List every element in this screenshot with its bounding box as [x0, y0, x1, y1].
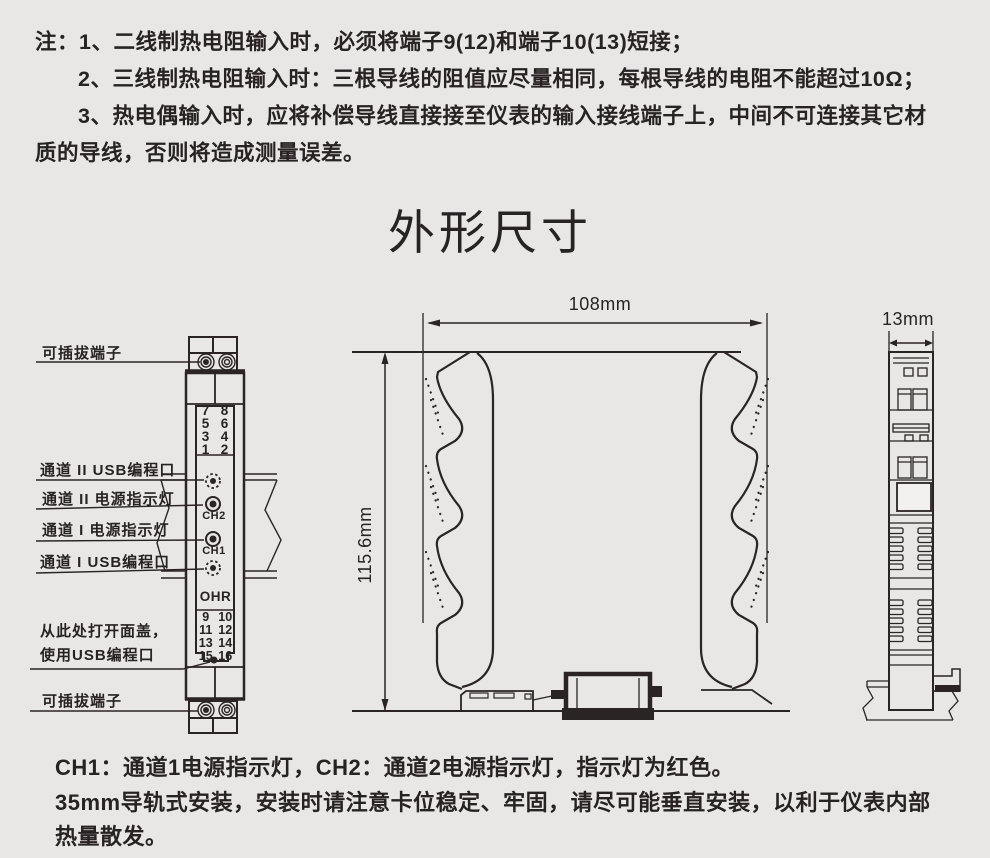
led-label-ch1: CH1 [198, 545, 230, 557]
label-pluggable-terminal-top: 可插拔端子 [42, 342, 122, 363]
screw-bottom-right [219, 702, 235, 718]
notes-bottom: CH1：通道1电源指示灯，CH2：通道2电源指示灯，指示灯为红色。 35mm导轨… [55, 751, 955, 855]
label-ch1-power-led: 通道 I 电源指示灯 [42, 519, 170, 540]
terminal-numbers-bottom: 9 10 11 12 13 14 15 16 [196, 611, 235, 663]
terminal-number: 16 [218, 650, 232, 663]
manual-page: 注：1、二线制热电阻输入时，必须将端子9(12)和端子10(13)短接； 2、三… [0, 0, 990, 858]
note-line: CH1：通道1电源指示灯，CH2：通道2电源指示灯，指示灯为红色。 [55, 751, 955, 786]
dotted-guides [426, 379, 768, 608]
label-ch1-usb-port: 通道 I USB编程口 [40, 551, 170, 572]
screw-bottom-left [198, 702, 214, 718]
dim-line-thickness [889, 340, 933, 347]
profile-rail [863, 669, 960, 720]
dim-line-width [427, 320, 763, 327]
note-line: 3、热电偶输入时，应将补偿导线直接接至仪表的输入接线端子上，中间不可连接其它材 [78, 98, 965, 135]
leader-line [36, 540, 204, 541]
note-line: 质的导线，否则将造成测量误差。 [35, 135, 965, 172]
label-open-cover-1: 从此处打开面盖， [40, 620, 168, 641]
note-line: 2、三线制热电阻输入时：三根导线的阻值应尽量相同，每根导线的电阻不能超过10Ω； [78, 61, 965, 98]
dimension-thickness-label: 13mm [878, 309, 938, 330]
dimension-height-label: 115.6mm [355, 495, 373, 595]
terminal-number: 2 [221, 443, 229, 456]
note-line: 注：1、二线制热电阻输入时，必须将端子9(12)和端子10(13)短接； [35, 24, 965, 61]
terminal-number: 1 [202, 443, 210, 456]
profile-view-drawing [863, 331, 960, 720]
brand-logo: OHR [195, 589, 236, 604]
dimension-width-label: 108mm [545, 294, 655, 315]
screw-top-right [219, 354, 235, 370]
led-ch1-indicator [206, 532, 220, 546]
dim-line-height [382, 352, 389, 711]
screw-top-left [198, 354, 214, 370]
led-ch2-indicator [206, 497, 220, 511]
led-label-ch2: CH2 [198, 510, 230, 522]
page-title: 外形尺寸 [290, 194, 690, 263]
note-line: 35mm导轨式安装，安装时请注意卡位稳定、牢固，请尽可能垂直安装，以利于仪表内部 [55, 786, 955, 821]
label-open-cover-2: 使用USB编程口 [40, 644, 155, 665]
usb-port-ch1 [206, 561, 220, 575]
notes-top: 注：1、二线制热电阻输入时，必须将端子9(12)和端子10(13)短接； 2、三… [35, 24, 965, 172]
din-rail [157, 474, 281, 578]
label-ch2-usb-port: 通道 II USB编程口 [40, 459, 175, 480]
note-line: 热量散发。 [55, 820, 955, 855]
usb-port-ch2 [206, 474, 220, 488]
side-view-drawing [352, 313, 790, 720]
label-pluggable-terminal-bottom: 可插拔端子 [42, 690, 122, 711]
vent-slots [889, 528, 933, 642]
terminal-number: 15 [199, 650, 213, 663]
rail-seat [461, 691, 566, 710]
terminal-numbers-top: 7 8 5 6 3 4 1 2 [196, 404, 234, 456]
label-ch2-power-led: 通道 II 电源指示灯 [42, 488, 175, 509]
rail-clip [551, 674, 662, 720]
